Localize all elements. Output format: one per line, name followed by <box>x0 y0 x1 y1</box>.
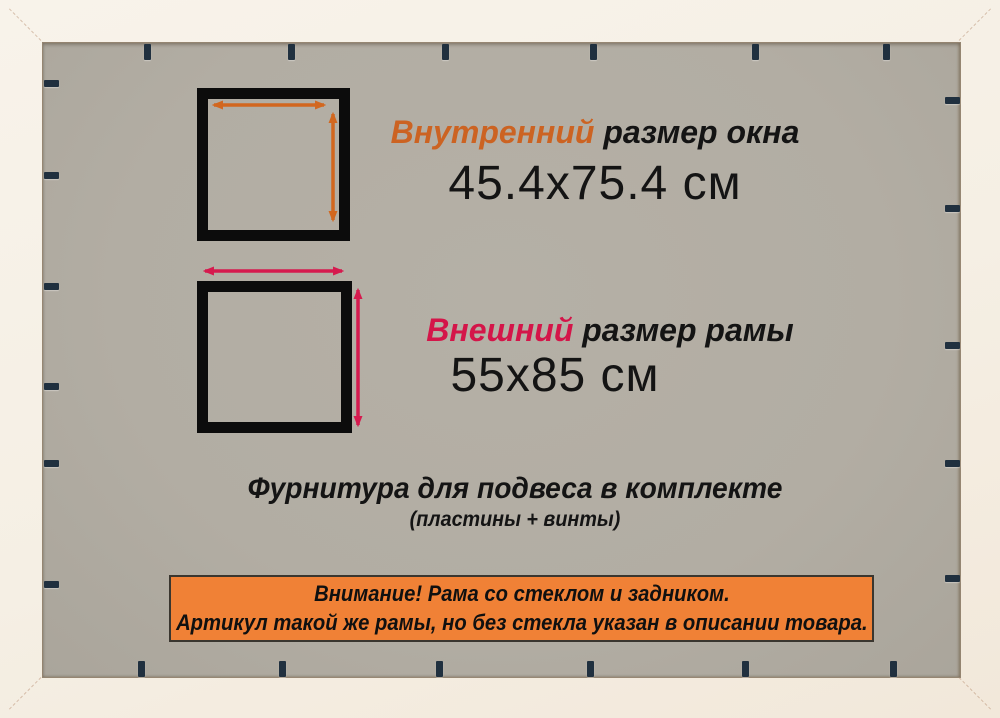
staple-clip <box>144 44 151 60</box>
staple-clip <box>138 661 145 677</box>
inner-size-value: 45.4x75.4 см <box>365 160 825 208</box>
outer-size-title-rest: размер рамы <box>573 312 793 348</box>
inner-size-title-rest: размер окна <box>594 114 799 150</box>
staple-clip <box>436 661 443 677</box>
staple-clip <box>883 44 890 60</box>
inner-window-square <box>197 88 350 241</box>
staple-clip <box>44 172 59 179</box>
notice-line2: Артикул такой же рамы, но без стекла ука… <box>176 610 868 636</box>
staple-clip <box>890 661 897 677</box>
outer-size-title: Внешний размер рамы <box>380 314 840 348</box>
staple-clip <box>945 97 960 104</box>
staple-clip <box>752 44 759 60</box>
staple-clip <box>590 44 597 60</box>
staple-clip <box>44 460 59 467</box>
staple-clip <box>945 342 960 349</box>
staple-clip <box>442 44 449 60</box>
staple-clip <box>288 44 295 60</box>
staple-clip <box>945 460 960 467</box>
miter-joint-top-right <box>955 8 991 44</box>
framed-product-photo: Внутренний размер окна 45.4x75.4 см Внеш… <box>0 0 1000 718</box>
hardware-note-line1: Фурнитура для подвеса в комплекте <box>233 472 797 506</box>
staple-clip <box>44 283 59 290</box>
inner-size-title: Внутренний размер окна <box>365 116 825 150</box>
miter-joint-bottom-left <box>9 673 45 709</box>
staple-clip <box>945 575 960 582</box>
notice-line1: Внимание! Рама со стеклом и задником. <box>314 581 730 607</box>
staple-clip <box>44 581 59 588</box>
outer-frame-square <box>197 281 352 433</box>
notice-banner: Внимание! Рама со стеклом и задником. Ар… <box>169 575 874 642</box>
staple-clip <box>945 205 960 212</box>
hardware-note-line2: (пластины + винты) <box>233 508 797 532</box>
staple-clip <box>587 661 594 677</box>
staple-clip <box>44 383 59 390</box>
staple-clip <box>44 80 59 87</box>
staple-clip <box>279 661 286 677</box>
staple-clip <box>742 661 749 677</box>
inner-size-title-accent: Внутренний <box>391 114 595 150</box>
outer-size-title-accent: Внешний <box>426 312 573 348</box>
miter-joint-top-left <box>9 8 45 44</box>
outer-size-value: 55x85 см <box>335 352 775 400</box>
miter-joint-bottom-right <box>955 673 991 709</box>
